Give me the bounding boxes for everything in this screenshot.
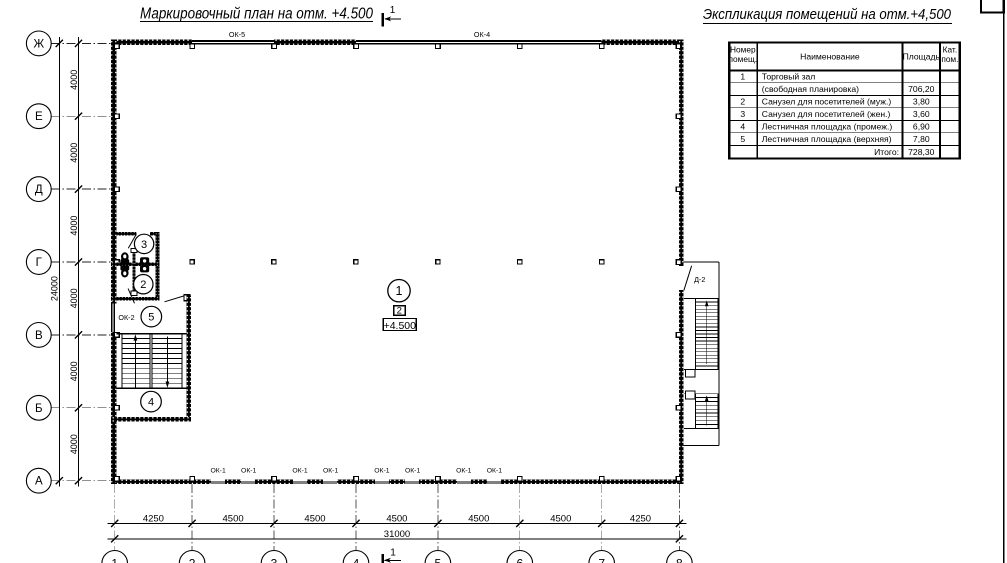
svg-text:6: 6 (516, 557, 523, 563)
svg-text:3,60: 3,60 (913, 109, 930, 119)
svg-text:4500: 4500 (223, 514, 244, 525)
svg-text:Лестничная площадка (промеж.): Лестничная площадка (промеж.) (762, 122, 893, 132)
svg-text:4000: 4000 (69, 288, 79, 308)
svg-text:Итого:: Итого: (874, 147, 899, 157)
svg-text:(свободная планировка): (свободная планировка) (762, 84, 859, 94)
svg-text:Б: Б (35, 403, 43, 415)
svg-text:ОК-4: ОК-4 (474, 30, 490, 39)
svg-text:пом.: пом. (941, 54, 958, 64)
svg-text:4500: 4500 (468, 514, 489, 525)
svg-text:6,90: 6,90 (913, 122, 930, 132)
svg-text:ОК-1: ОК-1 (241, 468, 257, 475)
svg-text:Г: Г (36, 257, 43, 269)
svg-text:5: 5 (740, 134, 745, 144)
svg-text:ОК-1: ОК-1 (323, 468, 339, 475)
svg-text:4250: 4250 (630, 514, 651, 525)
svg-text:4000: 4000 (69, 143, 79, 163)
svg-text:Санузел для посетителей (жен.): Санузел для посетителей (жен.) (762, 109, 891, 119)
svg-text:1: 1 (390, 5, 396, 16)
svg-text:706,20: 706,20 (908, 84, 935, 94)
svg-text:1: 1 (111, 557, 118, 563)
svg-text:ОК-5: ОК-5 (229, 30, 245, 39)
svg-text:1: 1 (740, 72, 745, 82)
svg-text:ОК-1: ОК-1 (210, 468, 226, 475)
svg-text:Наименование: Наименование (800, 52, 860, 62)
svg-text:ОК-1: ОК-1 (374, 468, 390, 475)
svg-text:4000: 4000 (69, 434, 79, 454)
svg-text:2: 2 (740, 97, 745, 107)
svg-text:Номер: Номер (730, 45, 756, 55)
svg-text:31000: 31000 (384, 529, 410, 540)
svg-text:ОК-1: ОК-1 (456, 468, 472, 475)
svg-text:ОК-2: ОК-2 (118, 313, 134, 322)
svg-text:7: 7 (598, 557, 605, 563)
svg-text:+4.500: +4.500 (384, 320, 417, 332)
svg-text:24000: 24000 (49, 276, 59, 301)
svg-text:1: 1 (396, 284, 403, 298)
svg-text:ОК-1: ОК-1 (405, 468, 421, 475)
svg-text:5: 5 (435, 557, 442, 563)
svg-text:В: В (35, 330, 43, 342)
svg-text:Д: Д (35, 184, 43, 196)
svg-text:5: 5 (148, 312, 154, 324)
svg-text:А: А (35, 476, 43, 488)
svg-text:Маркировочный план на отм. +4.: Маркировочный план на отм. +4.500 (140, 6, 373, 23)
svg-text:4500: 4500 (550, 514, 571, 525)
svg-text:2: 2 (397, 305, 402, 316)
svg-text:4: 4 (740, 122, 745, 132)
svg-text:ОК-1: ОК-1 (487, 468, 503, 475)
svg-text:Торговый зал: Торговый зал (762, 72, 816, 82)
svg-text:Е: Е (35, 111, 43, 123)
svg-text:Кат.: Кат. (943, 45, 957, 55)
svg-text:4: 4 (353, 557, 360, 563)
svg-text:Площадь: Площадь (903, 52, 941, 62)
svg-text:Санузел для посетителей (муж.): Санузел для посетителей (муж.) (762, 97, 892, 107)
svg-text:4000: 4000 (69, 361, 79, 381)
svg-text:помещ.: помещ. (729, 54, 758, 64)
svg-text:Д-2: Д-2 (694, 275, 705, 284)
svg-text:4: 4 (148, 397, 154, 409)
svg-text:728,30: 728,30 (908, 147, 935, 157)
svg-text:2: 2 (189, 557, 196, 563)
svg-text:ОК-1: ОК-1 (292, 468, 308, 475)
svg-text:3: 3 (740, 109, 745, 119)
svg-text:4250: 4250 (143, 514, 164, 525)
svg-text:2: 2 (140, 279, 146, 291)
svg-text:1: 1 (390, 548, 396, 559)
svg-text:4000: 4000 (69, 216, 79, 236)
svg-text:3: 3 (271, 557, 278, 563)
svg-text:4000: 4000 (69, 70, 79, 90)
svg-text:3,80: 3,80 (913, 97, 930, 107)
svg-text:8: 8 (676, 557, 683, 563)
svg-text:Экспликация помещений на отм.+: Экспликация помещений на отм.+4,500 (703, 6, 952, 23)
svg-text:7,80: 7,80 (913, 134, 930, 144)
svg-text:4500: 4500 (386, 514, 407, 525)
svg-text:Лестничная площадка (верхняя): Лестничная площадка (верхняя) (762, 134, 892, 144)
svg-text:4500: 4500 (304, 514, 325, 525)
svg-text:Ж: Ж (33, 38, 44, 50)
svg-text:3: 3 (141, 239, 147, 251)
